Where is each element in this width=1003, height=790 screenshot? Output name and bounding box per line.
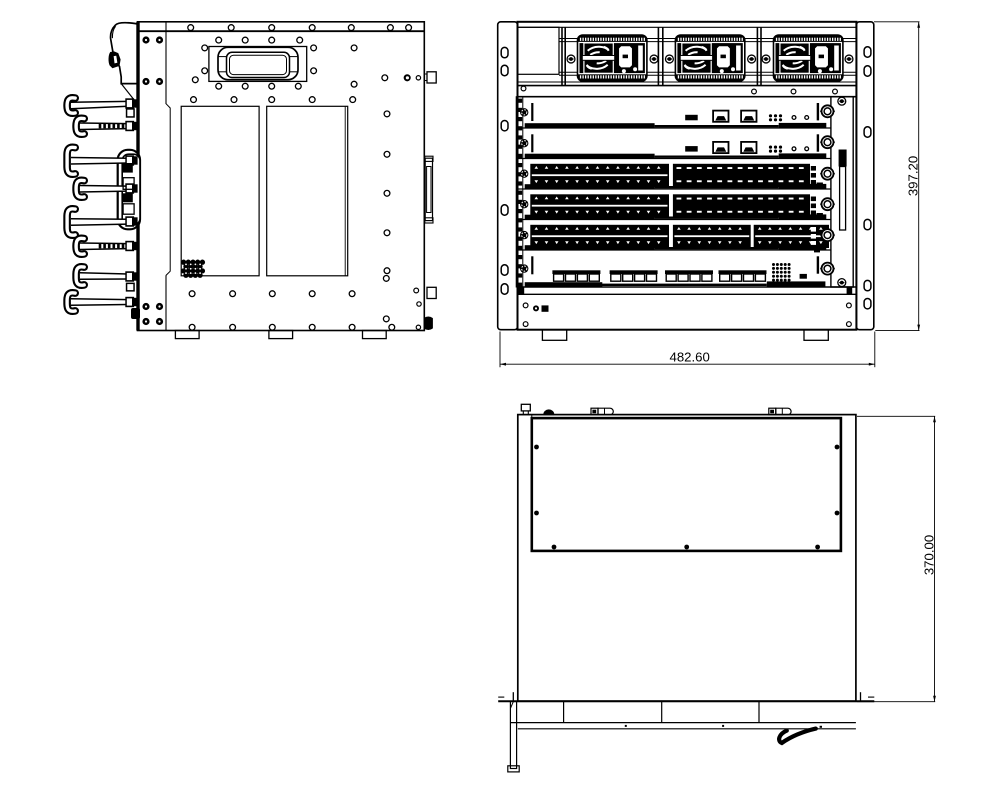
svg-text:397.20: 397.20 — [905, 156, 920, 196]
svg-text:370.00: 370.00 — [921, 535, 936, 575]
svg-text:482.60: 482.60 — [670, 349, 710, 364]
